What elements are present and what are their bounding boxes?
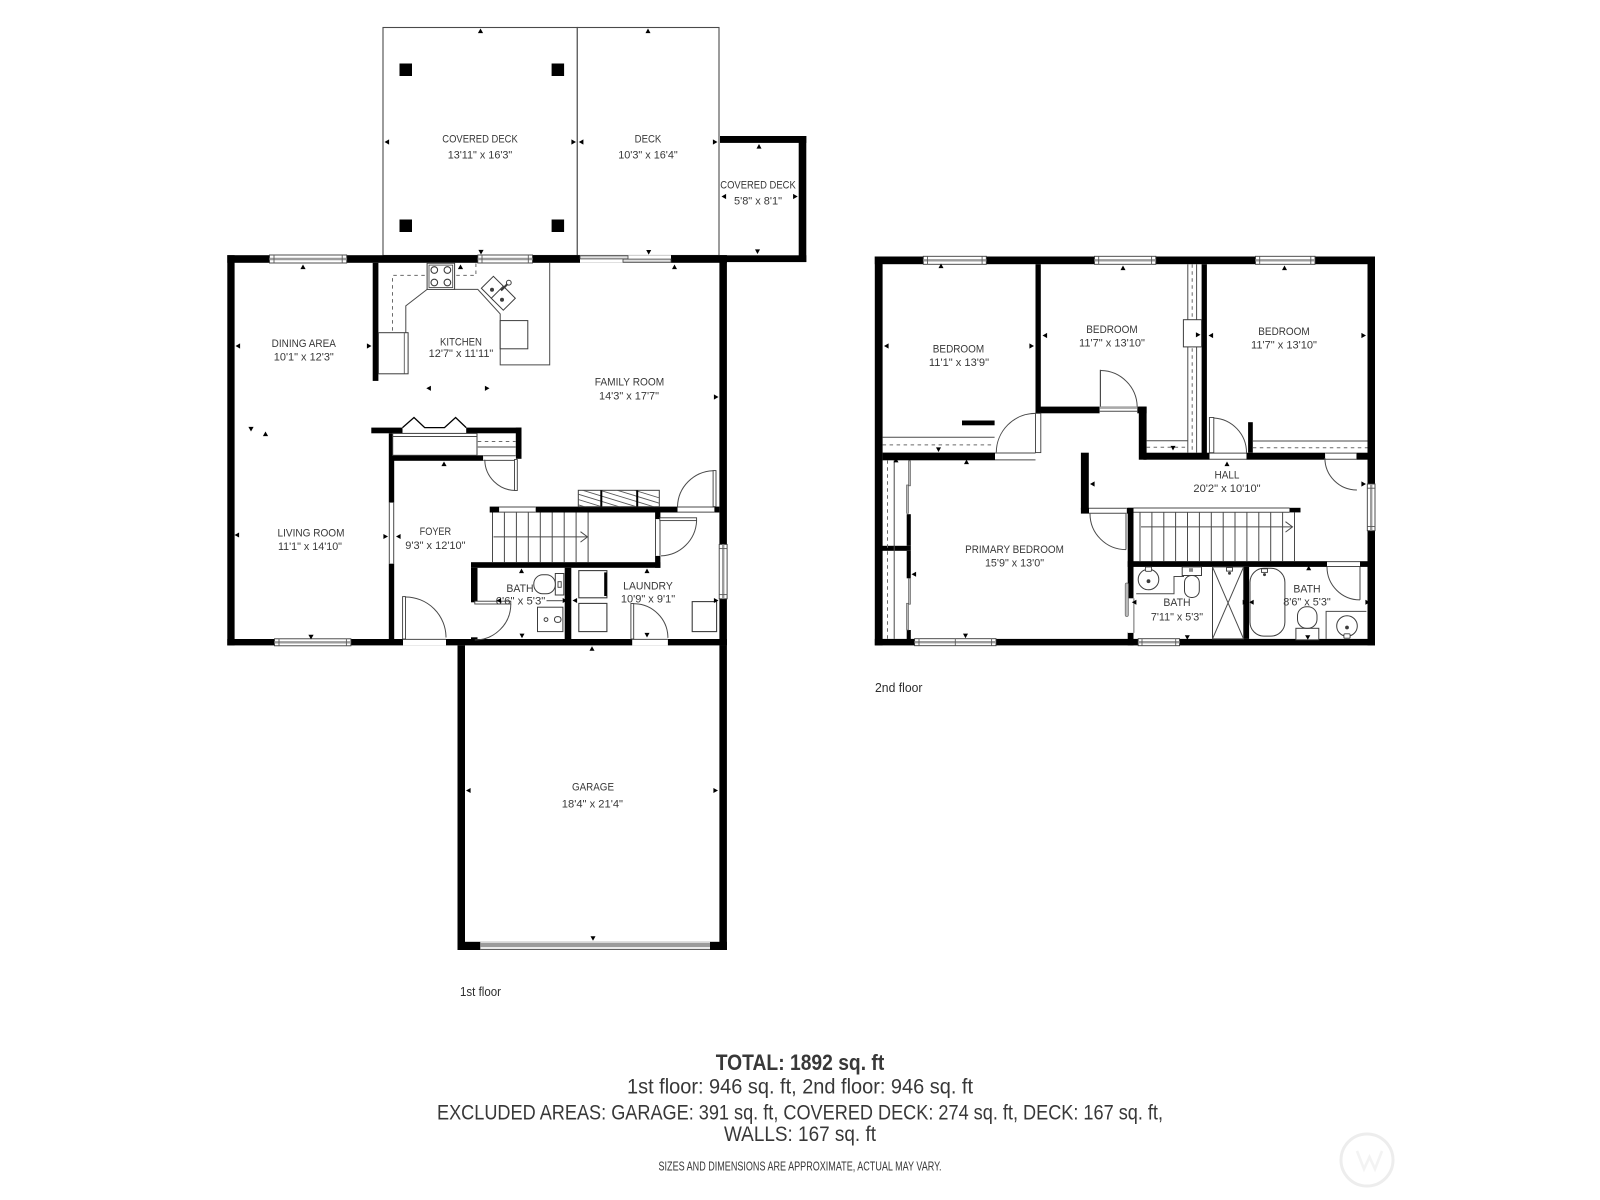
svg-text:7'11" x 5'3": 7'11" x 5'3" (1151, 612, 1203, 624)
svg-text:9'3" x 12'10": 9'3" x 12'10" (405, 540, 465, 552)
svg-text:HALL: HALL (1215, 470, 1240, 482)
svg-text:11'1" x 14'10": 11'1" x 14'10" (278, 541, 342, 553)
svg-text:PRIMARY BEDROOM: PRIMARY BEDROOM (965, 544, 1064, 556)
svg-text:10'3" x 16'4": 10'3" x 16'4" (618, 150, 678, 162)
svg-text:8'6" x 5'3": 8'6" x 5'3" (1283, 597, 1331, 609)
svg-text:DECK: DECK (635, 134, 662, 146)
svg-text:WALLS: 167 sq. ft: WALLS: 167 sq. ft (724, 1123, 876, 1146)
svg-text:COVERED DECK: COVERED DECK (720, 180, 796, 192)
svg-text:11'1" x 13'9": 11'1" x 13'9" (929, 357, 989, 369)
svg-text:GARAGE: GARAGE (572, 782, 614, 794)
svg-text:10'9" x 9'1": 10'9" x 9'1" (621, 593, 675, 605)
svg-text:EXCLUDED AREAS: GARAGE: 391 sq: EXCLUDED AREAS: GARAGE: 391 sq. ft, COVE… (437, 1102, 1163, 1125)
svg-text:1st floor: 1st floor (460, 985, 501, 999)
svg-text:5'8" x 8'1": 5'8" x 8'1" (734, 196, 782, 208)
svg-text:DINING AREA: DINING AREA (272, 338, 337, 350)
svg-text:11'7" x 13'10": 11'7" x 13'10" (1079, 338, 1145, 350)
svg-text:10'1" x 12'3": 10'1" x 12'3" (274, 351, 334, 363)
svg-text:6'6" x 5'3": 6'6" x 5'3" (496, 595, 546, 607)
svg-text:LIVING ROOM: LIVING ROOM (278, 528, 345, 540)
svg-text:KITCHEN: KITCHEN (440, 336, 482, 348)
svg-text:TOTAL: 1892 sq. ft: TOTAL: 1892 sq. ft (716, 1050, 885, 1075)
svg-text:11'7" x 13'10": 11'7" x 13'10" (1251, 340, 1317, 352)
svg-text:15'9" x 13'0": 15'9" x 13'0" (985, 558, 1044, 570)
svg-text:2nd floor: 2nd floor (875, 681, 923, 695)
svg-text:COVERED DECK: COVERED DECK (442, 134, 518, 146)
svg-text:SIZES AND DIMENSIONS ARE APPRO: SIZES AND DIMENSIONS ARE APPROXIMATE, AC… (659, 1160, 942, 1174)
svg-text:LAUNDRY: LAUNDRY (623, 580, 673, 592)
svg-text:BEDROOM: BEDROOM (1258, 326, 1309, 338)
svg-text:BATH: BATH (506, 583, 533, 595)
svg-text:FAMILY ROOM: FAMILY ROOM (595, 377, 664, 389)
svg-text:FOYER: FOYER (420, 526, 452, 538)
svg-text:14'3" x 17'7": 14'3" x 17'7" (599, 391, 659, 403)
svg-text:12'7" x 11'11": 12'7" x 11'11" (429, 348, 494, 360)
svg-text:18'4" x 21'4": 18'4" x 21'4" (562, 799, 623, 811)
svg-text:1st floor: 946 sq. ft, 2nd flo: 1st floor: 946 sq. ft, 2nd floor: 946 sq… (627, 1076, 973, 1099)
svg-text:BATH: BATH (1293, 584, 1320, 596)
svg-text:20'2" x 10'10": 20'2" x 10'10" (1193, 483, 1260, 495)
svg-text:13'11" x 16'3": 13'11" x 16'3" (448, 150, 513, 162)
svg-text:BEDROOM: BEDROOM (933, 344, 984, 356)
svg-text:BEDROOM: BEDROOM (1086, 324, 1137, 336)
svg-text:BATH: BATH (1163, 597, 1190, 609)
